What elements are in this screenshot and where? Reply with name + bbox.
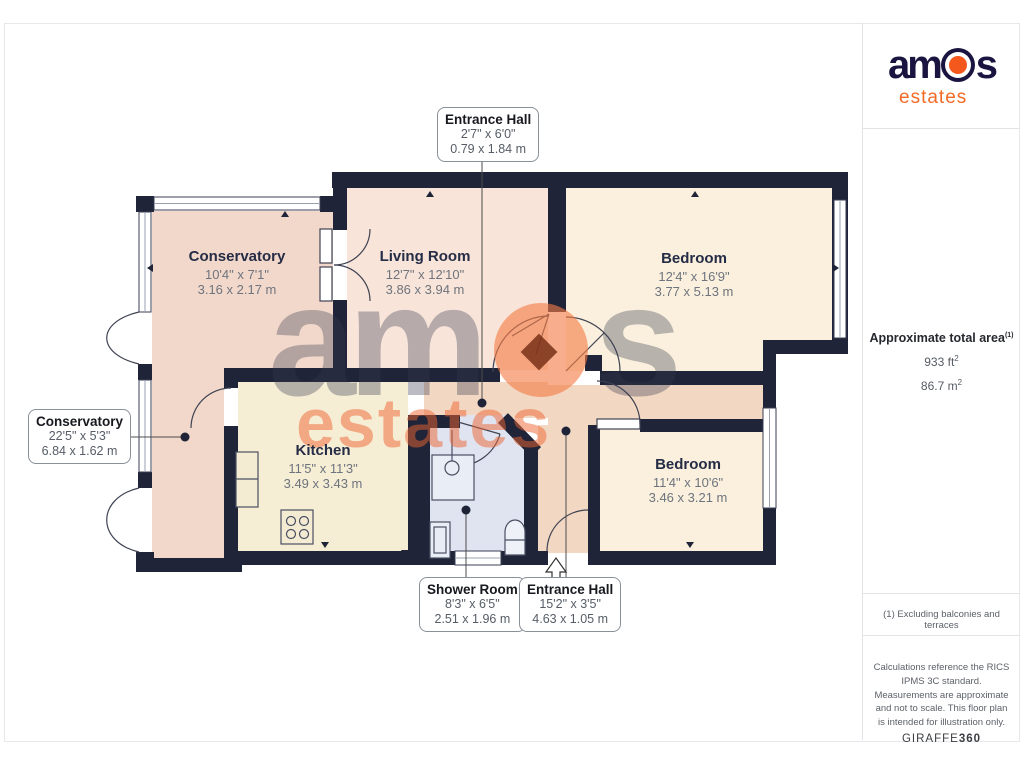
sidebar-divider xyxy=(863,128,1020,129)
callout-shower-room: Shower Room 8'3" x 6'5"2.51 x 1.96 m xyxy=(419,577,526,632)
room-kitchen-fill xyxy=(238,382,408,551)
logo-o-icon xyxy=(941,48,975,82)
logo-text-right: s xyxy=(976,45,995,85)
hall-passage-fill xyxy=(424,382,548,418)
agency-logo: am s estates xyxy=(863,45,1020,109)
area-sqft: 933 ft2 xyxy=(869,354,1014,369)
leader-dot xyxy=(181,433,190,442)
callout-conservatory-left: Conservatory 22'5" x 5'3"6.84 x 1.62 m xyxy=(28,409,131,464)
leader-dot xyxy=(562,427,571,436)
room-living-fill xyxy=(347,188,548,370)
shower-tray xyxy=(432,455,474,500)
logo-estates-text: estates xyxy=(899,87,1020,109)
info-sidebar: am s estates Approximate total area(1) 9… xyxy=(862,23,1020,740)
logo-text-left: am xyxy=(888,45,940,85)
floorplan-page: ams estates Conservatory 10'4" x 7'1"3.1… xyxy=(0,0,1024,768)
logo-orange-dot xyxy=(949,56,967,74)
leader-dot xyxy=(462,506,471,515)
disclaimer-text: Calculations reference the RICS IPMS 3C … xyxy=(872,661,1011,730)
leader-dot xyxy=(478,399,487,408)
total-area-title: Approximate total area xyxy=(869,331,1004,345)
callout-entrance-hall-bottom: Entrance Hall 15'2" x 3'5"4.63 x 1.05 m xyxy=(519,577,621,632)
door-arc-conservatory-ext-2 xyxy=(107,488,139,552)
door-leaf xyxy=(320,267,332,301)
room-bedroom2-fill xyxy=(600,425,763,551)
door-leaf xyxy=(320,229,332,263)
area-footnote: (1) Excluding balconies and terraces xyxy=(871,609,1012,631)
callout-entrance-hall-top: Entrance Hall 2'7" x 6'0"0.79 x 1.84 m xyxy=(437,107,539,162)
door-arc-conservatory-ext-1 xyxy=(107,312,139,364)
hall-corridor-v-fill xyxy=(538,425,588,553)
provider-brand: GIRAFFE360 xyxy=(863,733,1020,745)
door-leaf xyxy=(597,419,640,429)
sidebar-divider xyxy=(863,635,1020,636)
kitchen-hob xyxy=(281,510,313,544)
toilet xyxy=(505,520,525,555)
total-area-block: Approximate total area(1) 933 ft2 86.7 m… xyxy=(869,331,1014,393)
sidebar-divider xyxy=(863,593,1020,594)
area-sqm: 86.7 m2 xyxy=(869,378,1014,393)
